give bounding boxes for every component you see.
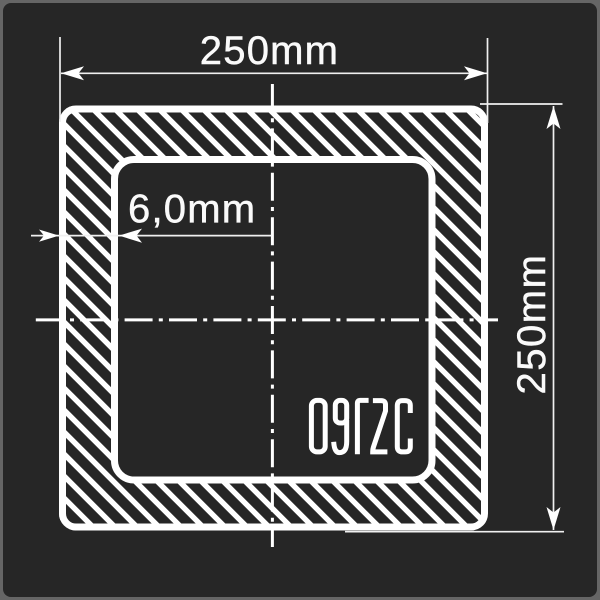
svg-text:6,0mm: 6,0mm xyxy=(128,187,256,231)
svg-text:250mm: 250mm xyxy=(510,254,554,395)
svg-text:250mm: 250mm xyxy=(200,29,339,73)
